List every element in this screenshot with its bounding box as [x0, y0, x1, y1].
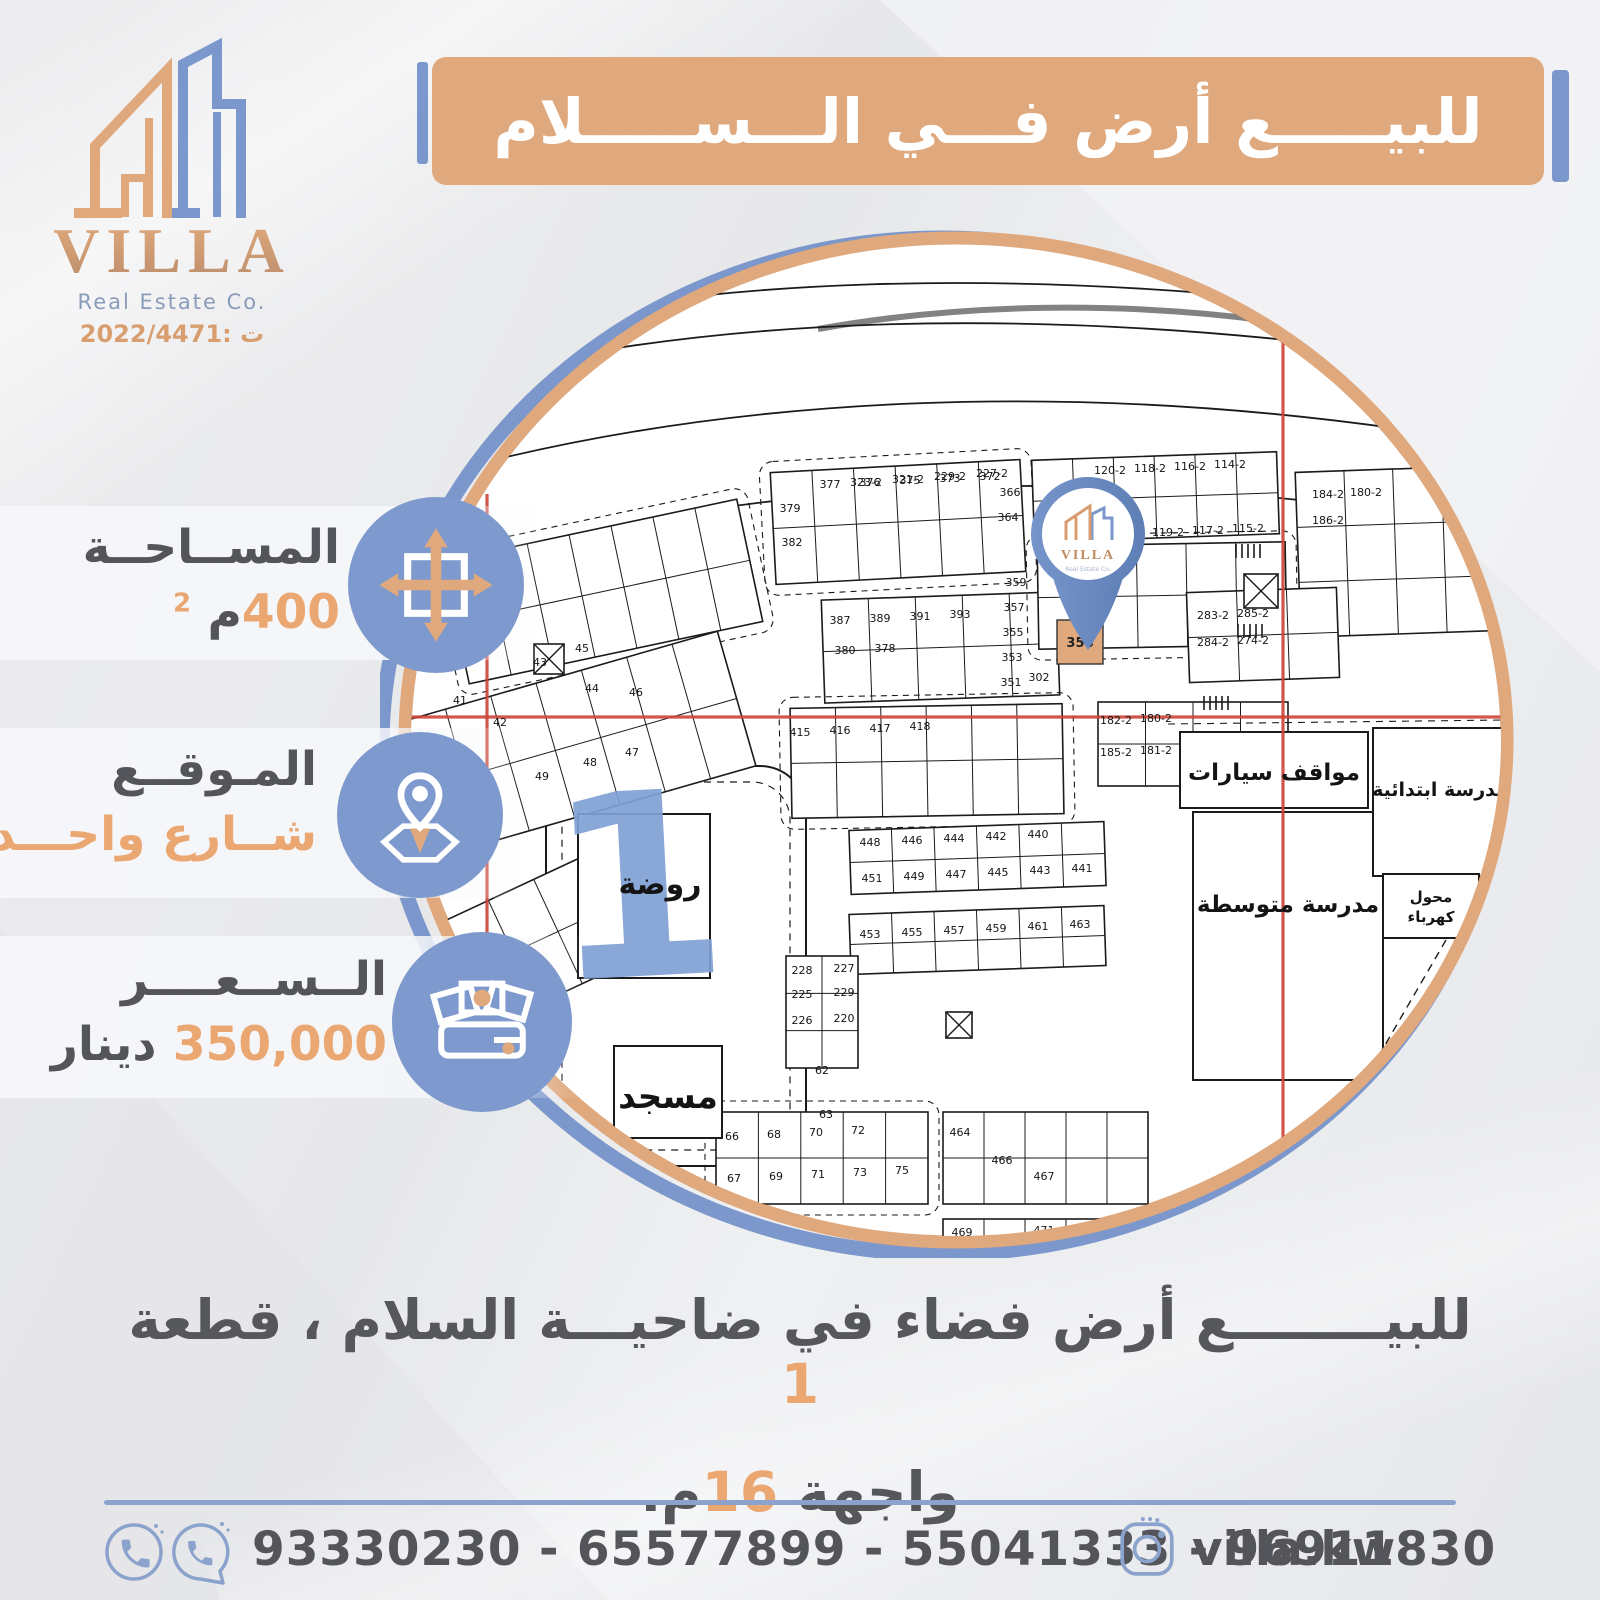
plot-number: 376 — [860, 476, 881, 489]
logo-subtitle: Real Estate Co. — [42, 290, 302, 314]
plot-number: 380 — [835, 644, 856, 657]
license-number: ت :2022/4471 — [42, 320, 302, 348]
cadastral-map: 3541روضةمسجدمواقف سياراتمدرسة ابتدائيةمد… — [380, 218, 1530, 1258]
plot-number: 180-2 — [1140, 712, 1172, 725]
company-logo: VILLA Real Estate Co. ت :2022/4471 — [42, 30, 302, 348]
plot-number: 441 — [1072, 862, 1093, 875]
plot-number: 68 — [767, 1128, 781, 1141]
instagram-handle: villa.kw — [1192, 1522, 1395, 1577]
plot-number: 418 — [910, 720, 931, 733]
plot-number: 391 — [910, 610, 931, 623]
plot-number: 378 — [875, 642, 896, 655]
plot-number: 417 — [870, 722, 891, 735]
plot-number: 284-2 — [1197, 636, 1229, 649]
plot-number: 442 — [986, 830, 1007, 843]
location-value: شــارع واحـــد — [0, 807, 317, 862]
logo-wordmark: VILLA — [42, 214, 302, 288]
map-label: مدرسة متوسطة — [1197, 892, 1379, 918]
plot-block — [943, 1112, 1148, 1204]
map-label: كهرباء — [1408, 908, 1455, 926]
map-label: روضة — [618, 867, 701, 902]
plot-number: 467 — [1034, 1170, 1055, 1183]
plot-number: 351 — [1001, 676, 1022, 689]
plot-number: 464 — [950, 1126, 971, 1139]
plot-number: 446 — [902, 834, 923, 847]
contact-icons — [100, 1512, 250, 1596]
plot-number: 443 — [1030, 864, 1051, 877]
footer-divider — [104, 1500, 1456, 1505]
plot-number: 63 — [819, 1108, 833, 1121]
plot-number: 73 — [853, 1166, 867, 1179]
plot-number: 445 — [988, 866, 1009, 879]
description: للبيــــــــع أرض فضاء في ضاحيـــة السلا… — [110, 1288, 1490, 1524]
location-icon-circle — [337, 732, 503, 898]
plot-number: 181-2 — [1140, 744, 1172, 757]
plot-number: 461 — [1028, 920, 1049, 933]
instagram-icon — [1116, 1516, 1178, 1582]
price-value: 350,000 دينار — [51, 1017, 387, 1072]
location-label: المـوقــع — [0, 742, 317, 797]
plot-number: 114-2 — [1214, 458, 1246, 471]
title-banner: للبيـــــع أرض فـــي الـــســـــلام — [432, 57, 1544, 185]
plot-number: 285-2 — [1237, 607, 1269, 620]
plot-block — [849, 906, 1106, 975]
map-label: مدرسة ابتدائية — [1372, 779, 1508, 801]
plot-number: 228 — [792, 964, 813, 977]
plot-number: 463 — [1070, 918, 1091, 931]
plot-number: 75 — [895, 1164, 909, 1177]
plot-number: 375 — [900, 474, 921, 487]
plot-number: 72 — [851, 1124, 865, 1137]
plot-number: 229 — [834, 986, 855, 999]
price-label: الــســعــــر — [51, 952, 387, 1007]
instagram-glyph — [1116, 1516, 1178, 1578]
plot-number: 118-2 — [1134, 462, 1166, 475]
plot-number: 366 — [1000, 486, 1021, 499]
plot-number: 416 — [830, 724, 851, 737]
plot-number: 184-2 — [1312, 488, 1344, 501]
plot-number: 46 — [629, 686, 643, 699]
plot-number: 115-2 — [1232, 522, 1264, 535]
plot-number: 44 — [585, 682, 599, 695]
poster-title: للبيـــــع أرض فـــي الـــســـــلام — [493, 85, 1482, 158]
plot-number: 274-2 — [1237, 634, 1269, 647]
plot-number: 225 — [792, 988, 813, 1001]
plot-number: 444 — [944, 832, 965, 845]
plot-number: 227 — [834, 962, 855, 975]
area-label: المســاحــة — [83, 520, 340, 575]
plot-number: 67 — [727, 1172, 741, 1185]
plot-number: 41 — [453, 694, 467, 707]
plot-number: 387 — [830, 614, 851, 627]
area-info: المســاحــة 400م 2 — [83, 520, 340, 640]
pin-brand: VILLA — [1061, 548, 1115, 563]
plot-number: 180-2 — [1350, 486, 1382, 499]
plot-number: 448 — [860, 836, 881, 849]
villa-buildings-icon — [65, 30, 280, 220]
map-oval: 3541روضةمسجدمواقف سياراتمدرسة ابتدائيةمد… — [380, 218, 1530, 1258]
map-label: مواقف سيارات — [1188, 760, 1360, 786]
price-icon-circle — [392, 932, 572, 1112]
area-value: 400م 2 — [83, 585, 340, 640]
plot-number: 66 — [725, 1130, 739, 1143]
plot-number: 116-2 — [1174, 460, 1206, 473]
plot-number: 372 — [980, 470, 1001, 483]
poster-canvas: VILLA Real Estate Co. ت :2022/4471 للبيـ… — [0, 0, 1600, 1600]
plot-number: 359 — [1006, 576, 1027, 589]
plot-number: 283-2 — [1197, 609, 1229, 622]
plot-number: 453 — [860, 928, 881, 941]
plot-number: 472 — [1052, 1252, 1073, 1258]
plot-number: 226 — [792, 1014, 813, 1027]
plot-number: 353 — [1002, 651, 1023, 664]
plot-number: 440 — [1028, 828, 1049, 841]
plot-number: 47 — [625, 746, 639, 759]
phone-whatsapp-icons — [100, 1512, 250, 1592]
area-icon-circle — [348, 497, 524, 673]
plot-number: 447 — [946, 868, 967, 881]
description-line2: واجهة 16م. — [110, 1460, 1490, 1524]
plot-number: 379 — [780, 502, 801, 515]
plot-block — [779, 692, 1075, 829]
plot-number: 455 — [902, 926, 923, 939]
plot-number: 182-2 — [1100, 714, 1132, 727]
plot-number: 357 — [1004, 601, 1025, 614]
plot-number: 48 — [583, 756, 597, 769]
plot-number: 382 — [782, 536, 803, 549]
map-label: محول — [1410, 888, 1453, 906]
map-pin-icon — [364, 759, 476, 871]
plot-number: 393 — [950, 608, 971, 621]
price-info: الــســعــــر 350,000 دينار — [51, 952, 387, 1072]
plot-number: 449 — [904, 870, 925, 883]
plot-number: 45 — [575, 642, 589, 655]
plot-number: 466 — [992, 1154, 1013, 1167]
plot-block — [849, 822, 1106, 895]
plot-number: 185-2 — [1100, 746, 1132, 759]
plot-number: 117-2 — [1192, 524, 1224, 537]
plot-number: 186-2 — [1312, 514, 1344, 527]
plot-number: 457 — [944, 924, 965, 937]
description-line1: للبيــــــــع أرض فضاء في ضاحيـــة السلا… — [110, 1288, 1490, 1416]
plot-number: 62 — [815, 1064, 829, 1077]
plot-number: 415 — [790, 726, 811, 739]
plot-number: 220 — [834, 1012, 855, 1025]
plot-number: 71 — [811, 1168, 825, 1181]
plot-number: 451 — [862, 872, 883, 885]
pin-brand-sub: Real Estate Co. — [1065, 566, 1110, 573]
plot-number: 49 — [535, 770, 549, 783]
location-info: المـوقــع شــارع واحـــد — [0, 742, 317, 862]
plot-number: 302 — [1029, 671, 1050, 684]
dimensions-icon — [377, 526, 495, 644]
plot-number: 459 — [986, 922, 1007, 935]
plot-number: 70 — [809, 1126, 823, 1139]
plot-number: 364 — [998, 511, 1019, 524]
money-icon — [422, 962, 542, 1082]
plot-number: 119-2 — [1152, 526, 1184, 539]
plot-number: 377 — [820, 478, 841, 491]
banner-accent-right — [1552, 70, 1569, 182]
map-label: مسجد — [618, 1077, 718, 1117]
banner-accent-left — [417, 62, 428, 164]
plot-number: 373 — [940, 472, 961, 485]
plot-number: 389 — [870, 612, 891, 625]
plot-number: 69 — [769, 1170, 783, 1183]
plot-number: 120-2 — [1094, 464, 1126, 477]
plot-number: 355 — [1003, 626, 1024, 639]
plot-number: 76 — [745, 1236, 759, 1249]
